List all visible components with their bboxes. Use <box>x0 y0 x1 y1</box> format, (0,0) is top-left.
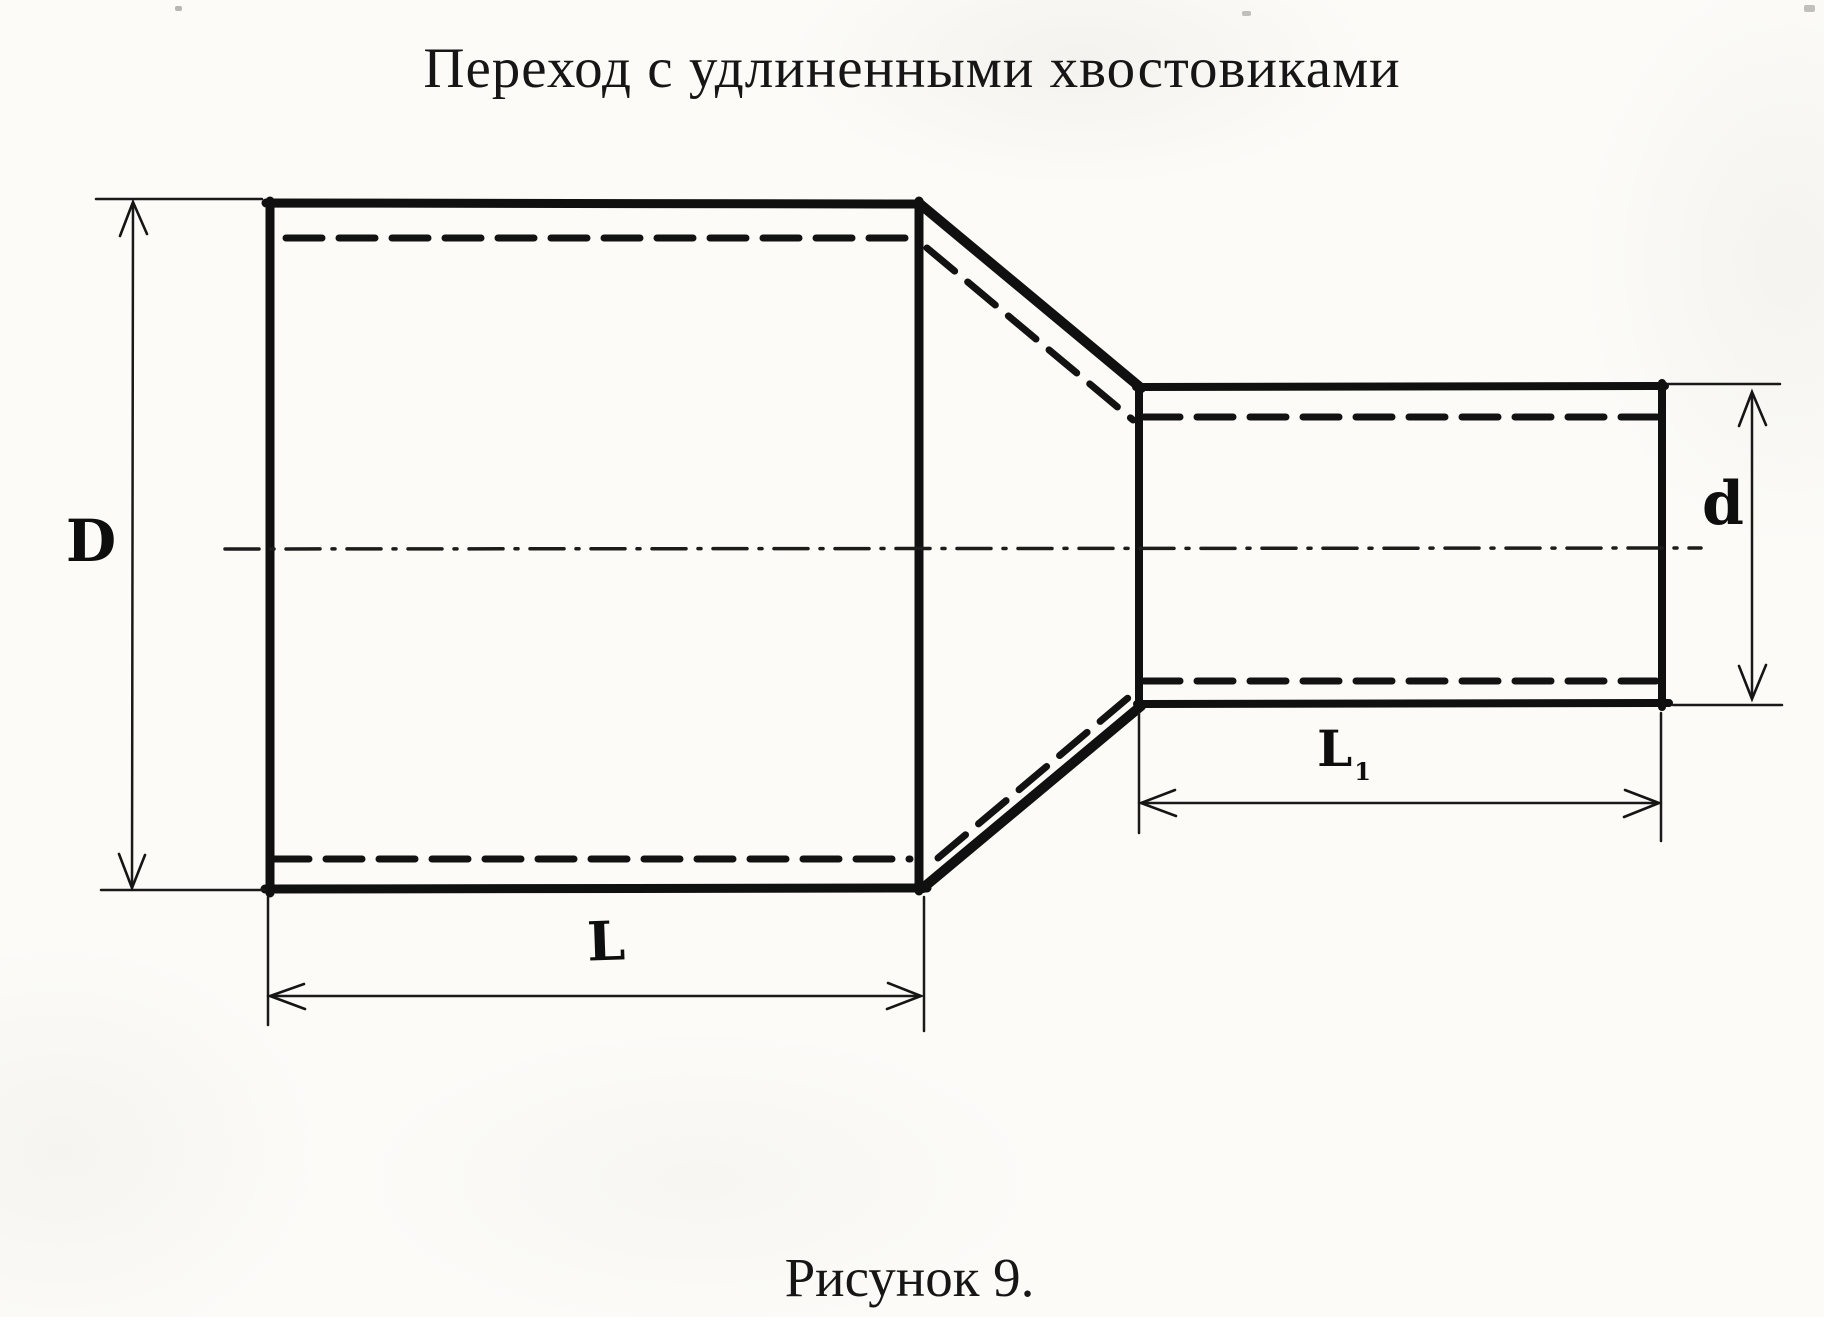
dim-line-D <box>132 205 133 886</box>
cone-outline <box>920 204 1141 888</box>
technical-drawing <box>0 0 1824 1317</box>
scan-speck <box>1242 11 1251 16</box>
extension-lines <box>96 199 1782 1031</box>
dimension-label-large-length: L <box>586 913 626 968</box>
centerline <box>225 548 1701 549</box>
cone-bore-bottom-line <box>938 692 1135 858</box>
dimension-label-large-diameter: D <box>66 512 116 570</box>
dimension-label-small-length: L1 <box>1317 724 1371 784</box>
figure-caption: Рисунок 9. <box>785 1246 1035 1309</box>
cone-bore-top-line <box>927 248 1133 420</box>
scan-speck <box>175 6 182 11</box>
dimension-label-small-diameter: d <box>1702 474 1744 534</box>
scan-speck <box>1804 5 1815 12</box>
dimension-label-small-length-main: L <box>1317 719 1352 778</box>
small-end-outline <box>1136 383 1669 708</box>
scanned-page: Переход с удлиненными хвостовиками <box>0 0 1824 1317</box>
dimension-label-small-length-subscript: 1 <box>1354 757 1371 786</box>
axis-centerline <box>225 548 1701 549</box>
